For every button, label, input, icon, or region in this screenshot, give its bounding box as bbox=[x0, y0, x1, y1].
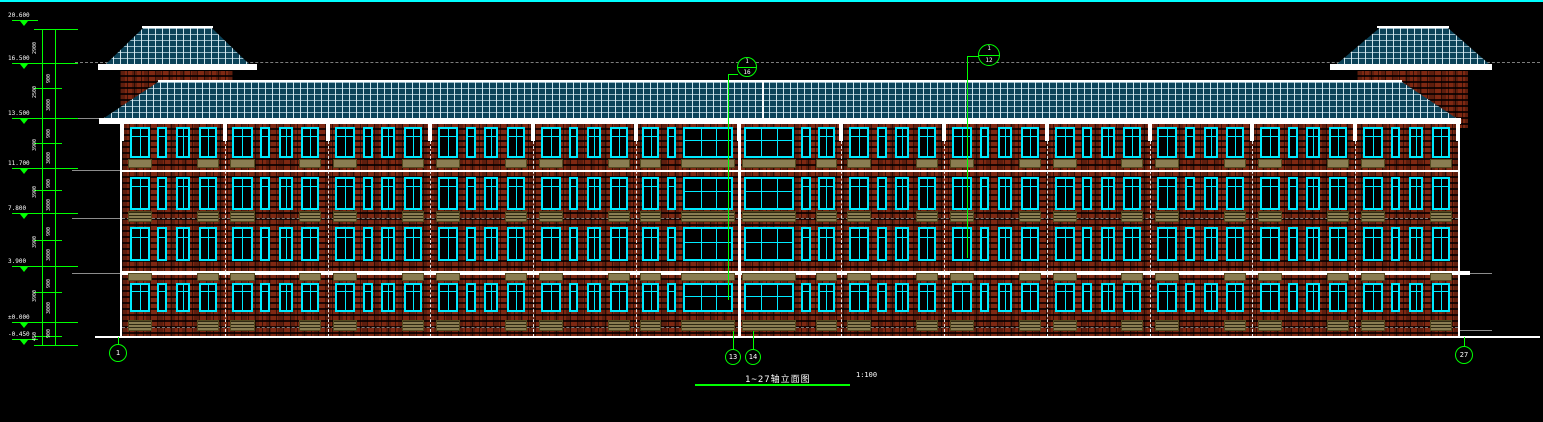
callout-leader bbox=[728, 74, 729, 300]
grid-axis-stub bbox=[733, 331, 734, 350]
drawing-title-block: 1~27轴立面图 1:100 bbox=[660, 368, 920, 392]
callout-number: 1 bbox=[978, 45, 1000, 53]
callout-number: 1 bbox=[737, 58, 757, 66]
cad-elevation-canvas: 20.60016.50013.50011.7007.8003.900±0.000… bbox=[0, 0, 1543, 422]
grid-bubble: 13 bbox=[725, 349, 741, 365]
callout-divider bbox=[979, 55, 999, 56]
callout-sheet: 12 bbox=[978, 57, 1000, 65]
callout-sheet: 16 bbox=[737, 69, 757, 77]
callout-leader bbox=[967, 56, 968, 258]
title-underline bbox=[695, 384, 850, 386]
grid-bubble: 14 bbox=[745, 349, 761, 365]
annotations: 1131427116112 bbox=[0, 0, 1543, 422]
grid-bubble: 27 bbox=[1455, 346, 1473, 364]
grid-axis-stub bbox=[753, 331, 754, 350]
callout-divider bbox=[738, 67, 756, 68]
drawing-scale: 1:100 bbox=[856, 371, 877, 379]
grid-bubble: 1 bbox=[109, 344, 127, 362]
